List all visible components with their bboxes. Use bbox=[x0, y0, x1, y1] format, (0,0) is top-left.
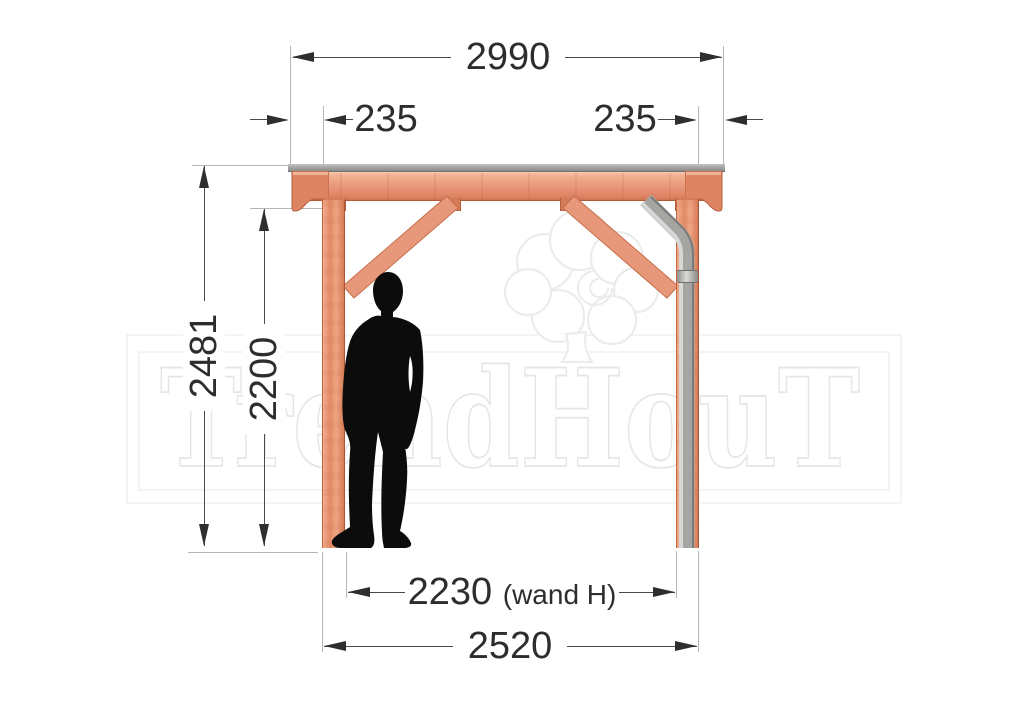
extension-line bbox=[290, 46, 291, 164]
dim-arrow-right-icon bbox=[675, 641, 697, 651]
fascia-beam bbox=[293, 172, 721, 201]
dim-label-roof-width: 2990 bbox=[451, 36, 565, 78]
extension-line bbox=[322, 552, 323, 652]
dim-arrow-up-icon bbox=[199, 166, 209, 188]
brace-right bbox=[563, 196, 678, 298]
brace-end-block-left bbox=[448, 198, 461, 211]
dim-arrow-left-icon bbox=[292, 52, 314, 62]
roof-panel bbox=[288, 164, 725, 172]
dim-arrow-up-icon bbox=[259, 209, 269, 231]
dim-label-overhang-right: 235 bbox=[592, 98, 658, 140]
extension-line bbox=[676, 551, 677, 598]
dim-arrow-left-icon bbox=[324, 641, 346, 651]
dim-arrow-right-icon bbox=[653, 587, 675, 597]
dim-arrow-left-icon bbox=[348, 587, 370, 597]
dim-arrow-right-icon bbox=[267, 115, 289, 125]
dim-arrow-down-icon bbox=[259, 524, 269, 546]
dim-label-post-span: 2520 bbox=[453, 625, 567, 667]
watermark-cloud-logo bbox=[505, 210, 658, 362]
dim-label-wall-width: 2230 (wand H) bbox=[405, 571, 619, 616]
dim-line-overhang-right bbox=[745, 119, 763, 120]
dim-arrow-down-icon bbox=[199, 524, 209, 546]
extension-line bbox=[188, 552, 318, 553]
dim-label-total-height: 2481 bbox=[183, 301, 225, 411]
dim-label-wall-width-value: 2230 bbox=[408, 571, 493, 613]
post-left bbox=[322, 200, 345, 548]
extension-line bbox=[698, 551, 699, 652]
extension-line bbox=[723, 46, 724, 164]
dim-label-clear-height: 2200 bbox=[243, 324, 285, 434]
dim-arrow-right-icon bbox=[675, 115, 697, 125]
extension-line bbox=[698, 106, 699, 170]
technical-drawing-canvas: TrendHouT 2990 235 235 2481 2200 2230 (w… bbox=[0, 0, 1024, 704]
dim-label-overhang-left: 235 bbox=[353, 98, 419, 140]
dim-label-wall-width-suffix: (wand H) bbox=[503, 579, 617, 610]
pipe-coupling bbox=[677, 270, 698, 283]
dim-arrow-right-icon bbox=[700, 52, 722, 62]
post-right bbox=[676, 200, 699, 548]
extension-line bbox=[346, 552, 347, 598]
dim-arrow-left-icon bbox=[324, 115, 346, 125]
dim-arrow-left-icon bbox=[725, 115, 747, 125]
brace-left bbox=[343, 196, 458, 298]
brace-end-block-right bbox=[560, 198, 573, 211]
